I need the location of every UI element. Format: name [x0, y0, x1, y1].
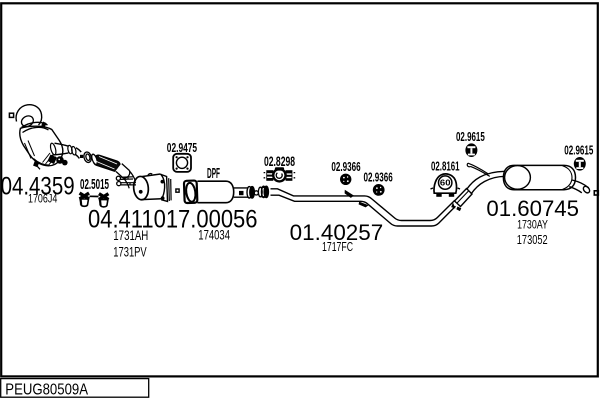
svg-text:60: 60 [440, 178, 451, 188]
svg-text:PEUG80509A: PEUG80509A [5, 382, 88, 399]
svg-text:02.9366: 02.9366 [364, 169, 393, 184]
svg-text:1731AH: 1731AH [113, 228, 148, 243]
svg-text:02.9615: 02.9615 [456, 130, 485, 144]
svg-text:DPF: DPF [207, 166, 220, 182]
svg-text:1706J4: 1706J4 [28, 192, 58, 206]
svg-text:02.9475: 02.9475 [167, 140, 197, 155]
svg-text:1717FC: 1717FC [322, 240, 353, 254]
svg-text:02.8161: 02.8161 [431, 159, 460, 174]
svg-text:174034: 174034 [198, 227, 230, 242]
svg-text:02.9366: 02.9366 [331, 159, 360, 174]
svg-text:02.9615: 02.9615 [564, 143, 593, 157]
svg-text:1731PV: 1731PV [113, 245, 146, 260]
svg-text:02.5015: 02.5015 [80, 177, 109, 193]
svg-text:173052: 173052 [517, 232, 548, 247]
svg-text:02.8298: 02.8298 [264, 153, 295, 169]
svg-text:1730AY: 1730AY [517, 218, 548, 232]
